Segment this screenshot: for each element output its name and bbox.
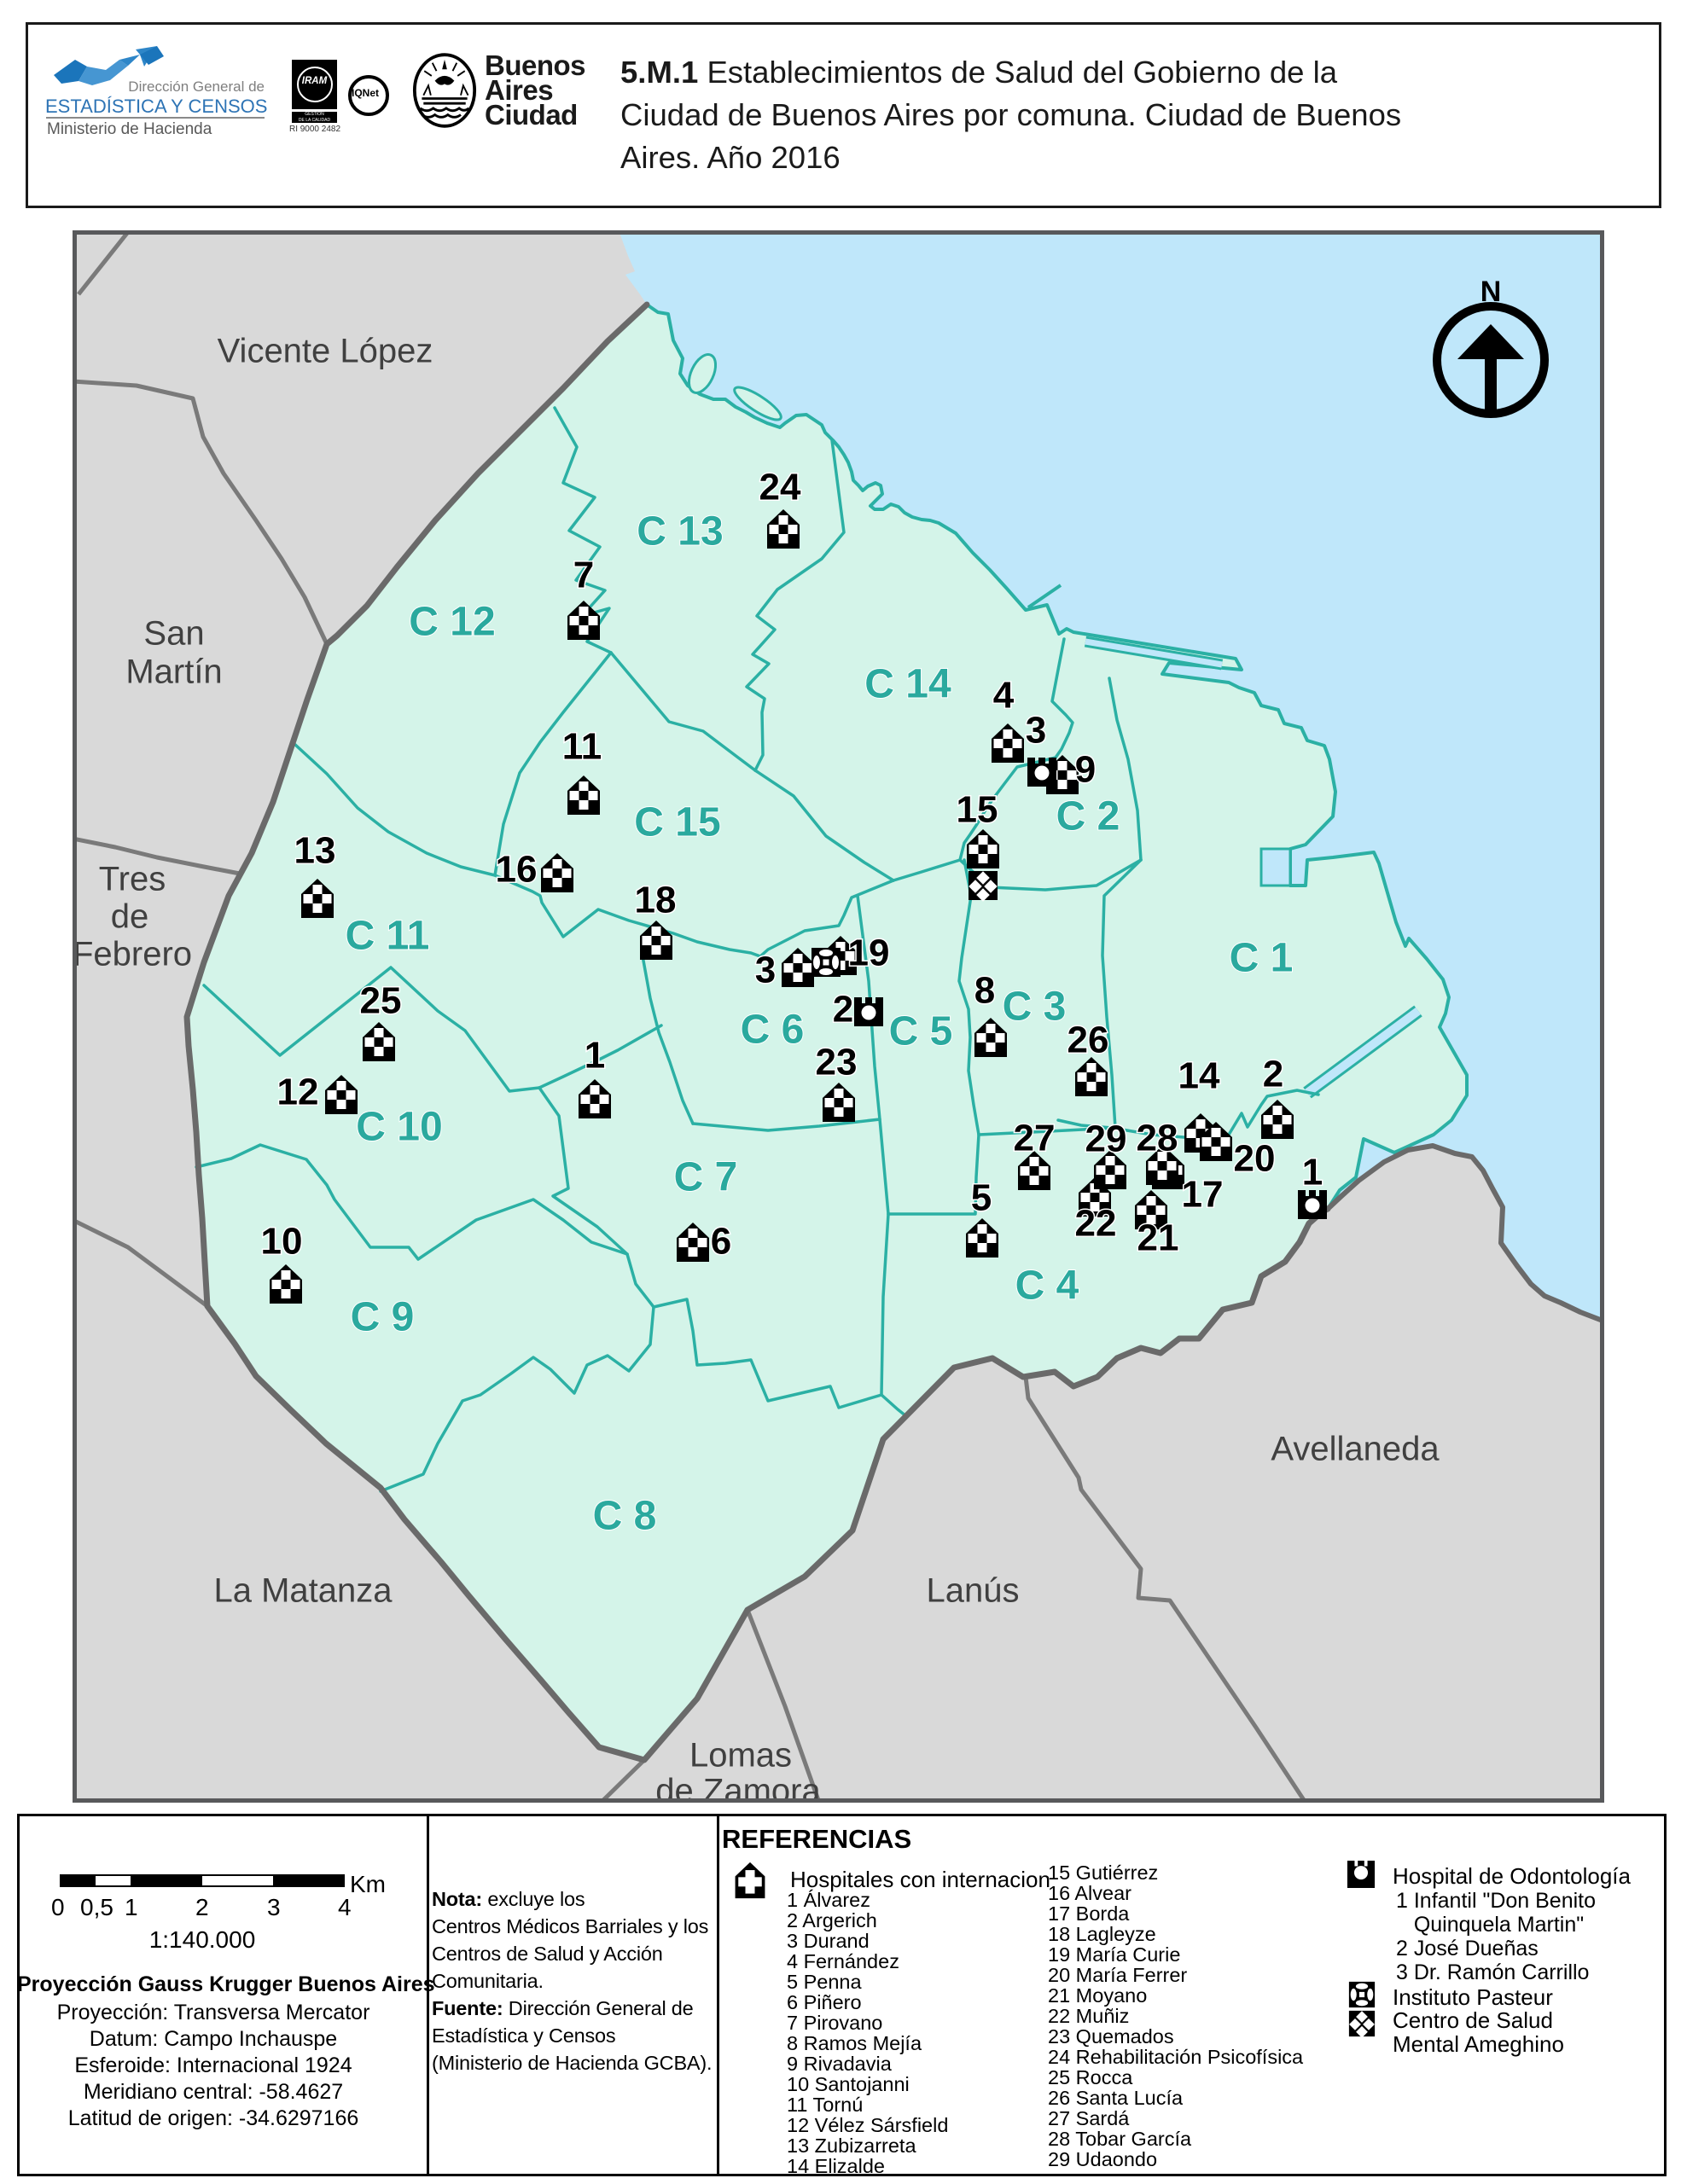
svg-text:16: 16: [496, 849, 538, 891]
svg-text:C 3: C 3: [1003, 985, 1067, 1030]
svg-text:3: 3: [1026, 710, 1046, 752]
svg-text:29: 29: [1085, 1118, 1127, 1160]
svg-text:C 5: C 5: [889, 1009, 953, 1054]
svg-text:4: 4: [993, 675, 1015, 717]
svg-text:La Matanza: La Matanza: [213, 1572, 393, 1610]
svg-text:C 12: C 12: [409, 600, 495, 645]
svg-text:C 7: C 7: [674, 1155, 738, 1200]
svg-text:26: 26: [1067, 1019, 1109, 1061]
svg-text:19: 19: [848, 932, 890, 974]
svg-text:25: 25: [360, 980, 402, 1022]
svg-text:1: 1: [585, 1035, 605, 1077]
svg-text:C 4: C 4: [1015, 1263, 1079, 1309]
svg-text:18: 18: [635, 880, 677, 921]
svg-text:N: N: [1480, 276, 1502, 308]
svg-text:23: 23: [816, 1042, 858, 1083]
svg-text:22: 22: [1075, 1203, 1117, 1245]
svg-text:Vicente López: Vicente López: [218, 333, 433, 370]
svg-text:2: 2: [833, 989, 853, 1031]
svg-text:Febrero: Febrero: [73, 936, 192, 973]
svg-text:20: 20: [1234, 1138, 1276, 1180]
svg-text:10: 10: [261, 1221, 303, 1263]
svg-text:13: 13: [294, 830, 336, 872]
svg-text:Tres: Tres: [99, 861, 166, 898]
svg-text:12: 12: [277, 1072, 319, 1113]
svg-text:C 11: C 11: [346, 914, 430, 959]
svg-text:C 8: C 8: [593, 1494, 657, 1539]
svg-text:2: 2: [1263, 1054, 1283, 1095]
svg-text:3: 3: [755, 950, 776, 991]
svg-text:C 13: C 13: [637, 509, 723, 555]
svg-text:27: 27: [1014, 1118, 1056, 1159]
svg-text:C 6: C 6: [741, 1008, 805, 1053]
svg-text:C 10: C 10: [356, 1105, 442, 1150]
svg-text:C 15: C 15: [634, 800, 720, 845]
svg-text:Avellaneda: Avellaneda: [1271, 1431, 1440, 1468]
svg-text:Martín: Martín: [125, 653, 222, 691]
svg-text:C 2: C 2: [1056, 794, 1120, 839]
svg-text:de Zamora: de Zamora: [655, 1773, 821, 1803]
svg-text:7: 7: [573, 555, 594, 596]
svg-text:Lanús: Lanús: [927, 1572, 1020, 1610]
svg-text:28: 28: [1137, 1118, 1178, 1159]
svg-text:C 9: C 9: [351, 1295, 415, 1340]
svg-text:8: 8: [974, 970, 995, 1012]
svg-text:6: 6: [711, 1221, 731, 1263]
svg-text:C 1: C 1: [1230, 936, 1294, 981]
svg-text:11: 11: [562, 726, 602, 768]
svg-text:Lomas: Lomas: [689, 1737, 792, 1774]
svg-text:1: 1: [1302, 1152, 1323, 1194]
svg-text:17: 17: [1182, 1174, 1224, 1216]
svg-text:San: San: [143, 615, 204, 653]
svg-text:21: 21: [1137, 1217, 1179, 1259]
svg-text:5: 5: [971, 1177, 992, 1219]
svg-text:14: 14: [1178, 1055, 1220, 1097]
svg-text:C 14: C 14: [864, 662, 951, 707]
svg-text:de: de: [111, 898, 149, 936]
svg-text:24: 24: [759, 467, 801, 508]
svg-text:9: 9: [1075, 749, 1096, 791]
svg-text:15: 15: [957, 789, 998, 831]
